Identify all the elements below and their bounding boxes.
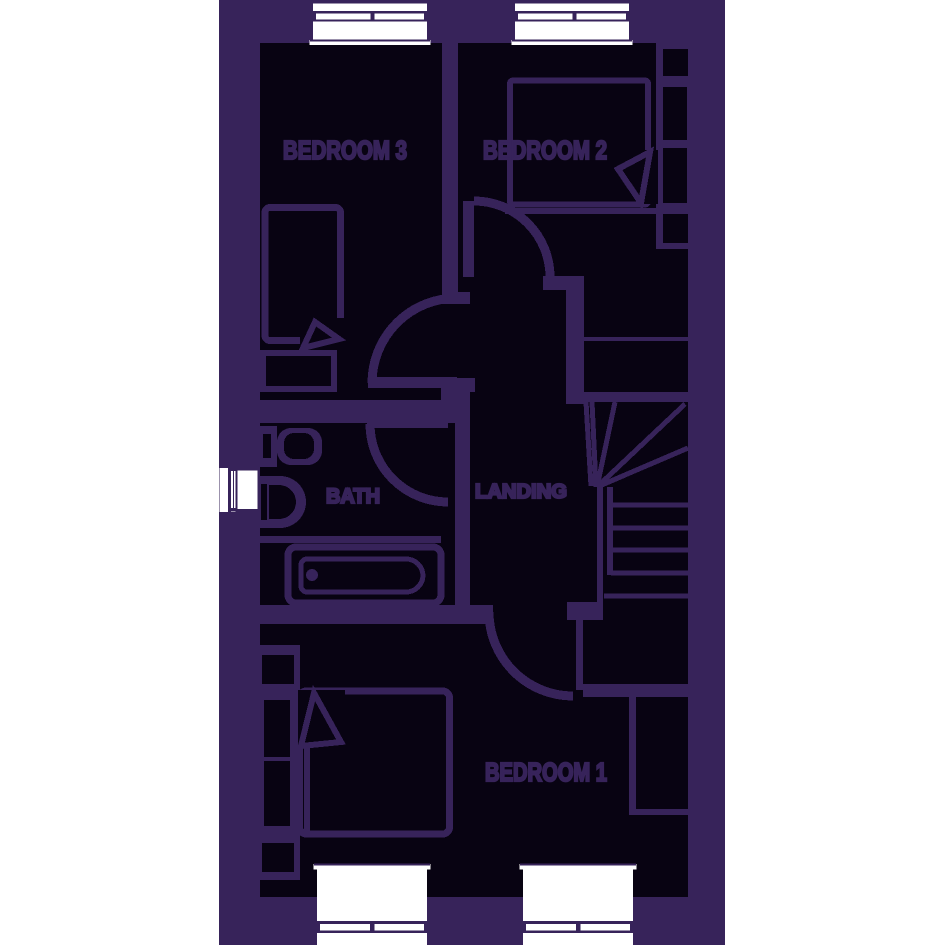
svg-text:BEDROOM 1: BEDROOM 1 — [485, 757, 607, 787]
svg-text:BEDROOM 3: BEDROOM 3 — [283, 135, 407, 165]
svg-text:BATH: BATH — [326, 485, 380, 508]
svg-text:LANDING: LANDING — [475, 481, 567, 503]
svg-text:BEDROOM 2: BEDROOM 2 — [483, 135, 607, 165]
